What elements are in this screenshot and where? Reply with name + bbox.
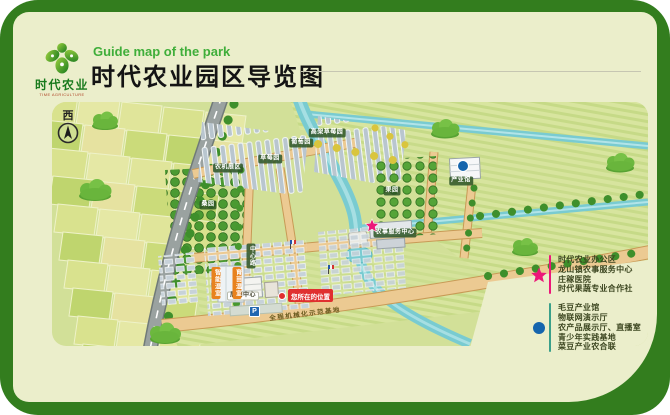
map-label: 农机展区 [213,164,243,173]
legend-item: 青少年实践基地 [558,333,641,343]
poster-card: 时代农业 TIME AGRICULTURE Guide map of the p… [13,12,657,402]
map-label: 桑园 [199,201,216,210]
map-label: 果园 [383,187,400,196]
blue-dot-marker-icon [457,160,469,172]
legend-item: 时代农业办公区 [558,255,633,265]
logo-figure-icon [44,42,80,74]
legend-group-dot: 毛豆产业馆 物联网演示厅 农产品展示厅、直播室 青少年实践基地 菜豆产业农合联 [529,303,655,352]
map-label: 高架草莓园 [309,129,346,138]
parking-sign: P [249,306,260,317]
logo-brand-en: TIME AGRICULTURE [31,92,93,97]
map-label: 草莓园 [258,155,282,164]
legend-dot-icon [529,322,549,334]
legend-item: 菜豆产业农合联 [558,342,641,352]
map-label: 葡萄园 [289,139,313,148]
logo-brand: 时代农业 [31,79,93,92]
legend-item: 农产品展示厅、直播室 [558,323,641,333]
legend: 时代农业办公区 龙山镇农事服务中心 庄稼医院 时代果蔬专业合作社 毛豆产业馆 物… [529,255,655,352]
compass: 西 [56,110,80,149]
poster-frame: 时代农业 TIME AGRICULTURE Guide map of the p… [0,0,670,415]
park-logo: 时代农业 TIME AGRICULTURE [31,42,93,97]
legend-item: 物联网演示厅 [558,313,641,323]
you-are-here-dot [278,292,286,300]
legend-group-star: 时代农业办公区 龙山镇农事服务中心 庄稼医院 时代果蔬专业合作社 [529,255,655,294]
legend-star-icon [529,267,549,283]
legend-item: 龙山镇农事服务中心 [558,265,633,275]
flag-marker-icon [290,240,296,249]
map-label: 智能温室 [212,267,221,299]
page-title: 时代农业园区导览图 [91,57,325,92]
map-label: 育苗温室 [233,267,242,299]
flag-marker-icon [328,265,334,274]
legend-item: 庄稼医院 [558,275,633,285]
map-label: 农事服务中心 [373,229,416,238]
header-rule [301,71,641,72]
you-are-here-badge: 您所在的位置 [288,289,333,302]
legend-item: 毛豆产业馆 [558,303,641,313]
map-label: 中心路 [247,244,256,269]
legend-item: 时代果蔬专业合作社 [558,284,633,294]
map-label: 产业馆 [449,177,473,186]
star-marker-icon [365,219,379,238]
compass-arrow-icon [57,122,79,144]
compass-label: 西 [56,110,80,122]
